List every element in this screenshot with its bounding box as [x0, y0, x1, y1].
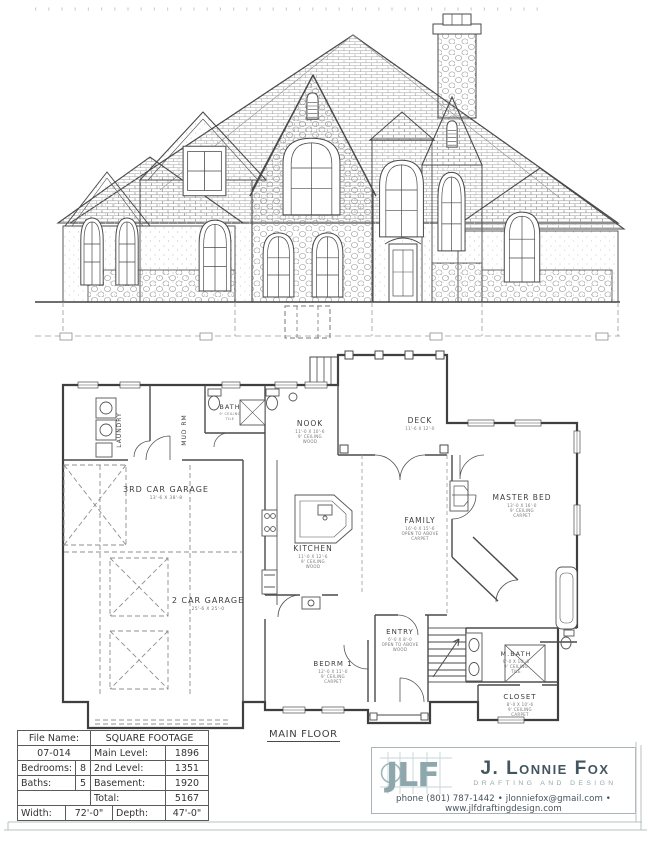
width-label: Width: — [18, 806, 65, 820]
gable-lower-window-right — [312, 233, 343, 297]
logo-initials: JLF — [384, 755, 439, 794]
kitchen-details — [262, 460, 352, 605]
room-sub: WOOD — [393, 647, 408, 652]
table-row: Baths: 5 Basement: 1920 — [18, 775, 208, 790]
room-sub: 13'-6 X 38'-8 — [150, 495, 183, 501]
room-sub: 9' CEILING — [219, 412, 240, 416]
room-label-bath: BATH — [219, 403, 240, 411]
garage-dashed-lines — [64, 465, 243, 724]
room-label-bedrm1: BEDRM 1 — [313, 660, 352, 668]
table-row: Bedrooms: 8 2nd Level: 1351 — [18, 760, 208, 775]
room-sub: 11'-6 X 12'-0 — [405, 426, 435, 431]
depth-value: 47'-0" — [165, 806, 208, 820]
plan-title: MAIN FLOOR — [267, 729, 340, 742]
second-level-label: 2nd Level: — [90, 761, 165, 775]
room-label-3rd-car-garage: 3RD CAR GARAGE — [123, 485, 209, 494]
second-level-value: 1351 — [165, 761, 208, 775]
logo-row: JLF J. Lonnie Fox DRAFTING AND DESIGN — [372, 748, 635, 794]
contact-line: phone (801) 787-1442 • jlonniefox@gmail.… — [372, 794, 635, 818]
logo-box: JLF J. Lonnie Fox DRAFTING AND DESIGN ph… — [371, 747, 636, 814]
front-elevation-drawing — [0, 0, 650, 345]
tower-louver-vent — [447, 121, 457, 147]
main-level-label: Main Level: — [90, 746, 165, 760]
file-name-value: 07-014 — [18, 746, 90, 760]
total-label: Total: — [90, 791, 165, 805]
gable-louver-vent — [307, 93, 318, 119]
gable-lower-window-left — [263, 233, 294, 297]
total-value: 5167 — [165, 791, 208, 805]
file-name-label: File Name: — [18, 731, 90, 745]
bedrooms-label: Bedrooms: — [18, 761, 75, 775]
room-label-nook: NOOK — [297, 419, 323, 428]
room-label-laundry: LAUNDRY — [116, 412, 123, 448]
width-value: 72'-0" — [65, 806, 112, 820]
title-block-table: File Name: SQUARE FOOTAGE 07-014 Main Le… — [17, 730, 209, 821]
depth-label: Depth: — [112, 806, 165, 820]
bedrooms-value: 8 — [75, 761, 90, 775]
entry-arch-window — [380, 160, 424, 237]
room-label-entry: ENTRY — [386, 628, 414, 636]
room-label-master-bed: MASTER BED — [493, 493, 552, 502]
room-label-mbath: M.BATH — [501, 650, 532, 658]
logo-name-column: J. Lonnie Fox DRAFTING AND DESIGN — [461, 759, 629, 787]
fireplace — [450, 481, 468, 511]
gable-upper-window — [283, 138, 340, 215]
room-sub: WOOD — [303, 439, 318, 444]
room-sub: 25'-6 X 25'-0 — [192, 606, 225, 612]
dormer-window — [183, 146, 226, 195]
room-sub: CARPET — [324, 679, 342, 684]
room-sub: TILE — [510, 669, 521, 674]
room-sub: CARPET — [411, 536, 429, 541]
jlf-logo-mark: JLF — [380, 752, 452, 794]
room-sub: CARPET — [511, 712, 529, 717]
chimney — [433, 14, 481, 118]
company-tagline: DRAFTING AND DESIGN — [473, 780, 616, 787]
room-label-kitchen: KITCHEN — [293, 544, 333, 553]
main-level-value: 1896 — [165, 746, 208, 760]
stairs — [428, 628, 466, 682]
entry-door — [385, 238, 421, 302]
table-row: Total: 5167 — [18, 790, 208, 805]
room-label-mudrm: MUD RM — [181, 414, 188, 445]
right-wing-window — [504, 212, 539, 282]
company-name: J. Lonnie Fox — [480, 759, 609, 778]
room-label-family: FAMILY — [404, 516, 435, 525]
room-label-closet: CLOSET — [503, 693, 536, 701]
square-footage-header: SQUARE FOOTAGE — [90, 731, 208, 745]
baths-label: Baths: — [18, 776, 75, 790]
basement-value: 1920 — [165, 776, 208, 790]
table-row: File Name: SQUARE FOOTAGE — [18, 731, 208, 745]
room-label-deck: DECK — [408, 416, 433, 425]
basement-label: Basement: — [90, 776, 165, 790]
room-label-2-car-garage: 2 CAR GARAGE — [172, 596, 244, 605]
baths-value: 5 — [75, 776, 90, 790]
main-floor-plan-drawing: LAUNDRY MUD RM BATH 9' CEILING TILE NOOK… — [0, 345, 650, 730]
drawing-sheet: LAUNDRY MUD RM BATH 9' CEILING TILE NOOK… — [0, 0, 650, 842]
tower-window — [438, 172, 465, 250]
room-sub: CARPET — [513, 513, 531, 518]
table-row: Width: 72'-0" Depth: 47'-0" — [18, 805, 208, 820]
room-labels: LAUNDRY MUD RM BATH 9' CEILING TILE NOOK… — [116, 403, 551, 717]
empty-cell — [18, 791, 90, 805]
room-sub: TILE — [225, 417, 235, 421]
entry-porch — [368, 713, 430, 720]
ground-and-foundation — [35, 302, 620, 340]
room-sub: WOOD — [306, 564, 321, 569]
deck-details — [310, 351, 448, 453]
table-row: 07-014 Main Level: 1896 — [18, 745, 208, 760]
